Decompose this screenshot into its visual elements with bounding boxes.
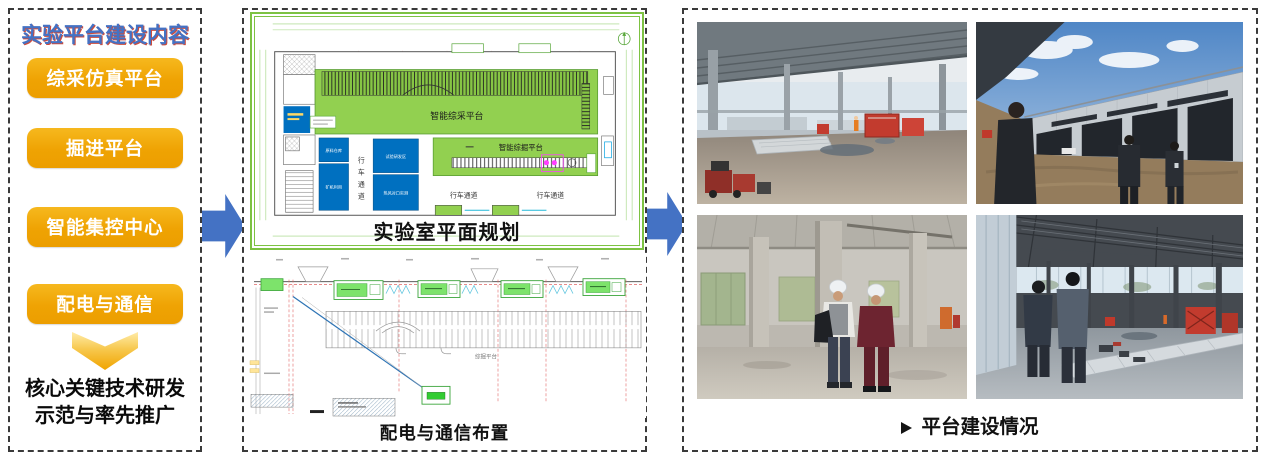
button-mining-simulation-platform[interactable]: 综采仿真平台 (27, 58, 183, 98)
floor-plan-drawing: 智能综采平台 智能综掘平台 原料仓库 矿机 (255, 17, 639, 245)
flow-arrow-left-icon (202, 194, 245, 258)
photo-interior-inspection (697, 215, 967, 399)
floor-plan-frame: 智能综采平台 智能综掘平台 原料仓库 矿机 (250, 12, 644, 250)
mining-area-label: 智能综采平台 (430, 110, 483, 121)
floor-plan-caption: 实验室平面规划 (255, 216, 639, 245)
button-tunneling-platform[interactable]: 掘进平台 (27, 128, 183, 168)
svg-text:道: 道 (358, 191, 365, 200)
wiring-diagram-drawing: 综掘平台 (246, 254, 646, 418)
svg-text:车: 车 (358, 168, 365, 177)
blue-room-3-label: 试验研发区 (386, 153, 407, 159)
flow-arrow-right-icon (644, 192, 687, 256)
conclusion-line2: 示范与率先推广 (10, 403, 200, 430)
comm-cabinet (422, 386, 450, 404)
svg-text:通: 通 (358, 179, 365, 188)
build-content-panel: 实验平台建设内容 综采仿真平台 掘进平台 智能集控中心 配电与通信 核心关键技术… (8, 8, 202, 452)
arrowhead-bullet-icon (901, 422, 912, 434)
button-smart-control-center[interactable]: 智能集控中心 (27, 207, 183, 247)
wiring-caption: 配电与通信布置 (244, 420, 645, 445)
wiring-area-label: 综掘平台 (475, 353, 497, 361)
bright-left-wall (976, 215, 1016, 375)
photo-interior-steel-hall (697, 22, 967, 204)
conclusion-line1: 核心关键技术研发 (10, 376, 200, 403)
section-band (326, 311, 641, 353)
corridor-right-label: 行车通道 (537, 190, 565, 199)
corridor-left-label: 行车通道 (450, 190, 478, 199)
blue-room-2-label: 矿机利用 (326, 183, 342, 189)
button-power-communication[interactable]: 配电与通信 (27, 284, 183, 324)
photo-exterior-steel-frame (976, 22, 1243, 204)
panel-title: 实验平台建设内容 (10, 19, 200, 49)
blue-room-4-label: 热风对口实测 (383, 189, 408, 195)
planning-panel: 智能综采平台 智能综掘平台 原料仓库 矿机 (242, 8, 647, 452)
photo-interior-wide-hall (976, 215, 1243, 399)
conclusion-text: 核心关键技术研发 示范与率先推广 (10, 376, 200, 430)
photos-caption: 平台建设情况 (684, 410, 1256, 439)
photos-caption-text: 平台建设情况 (921, 416, 1038, 438)
down-arrow-icon (72, 332, 138, 370)
construction-photos-panel: 平台建设情况 (682, 8, 1258, 452)
slide-canvas: 实验平台建设内容 综采仿真平台 掘进平台 智能集控中心 配电与通信 核心关键技术… (0, 0, 1268, 463)
blue-room-1-label: 原料仓库 (326, 147, 342, 153)
svg-text:行: 行 (358, 156, 365, 165)
tunneling-area-label: 智能综掘平台 (499, 143, 543, 152)
